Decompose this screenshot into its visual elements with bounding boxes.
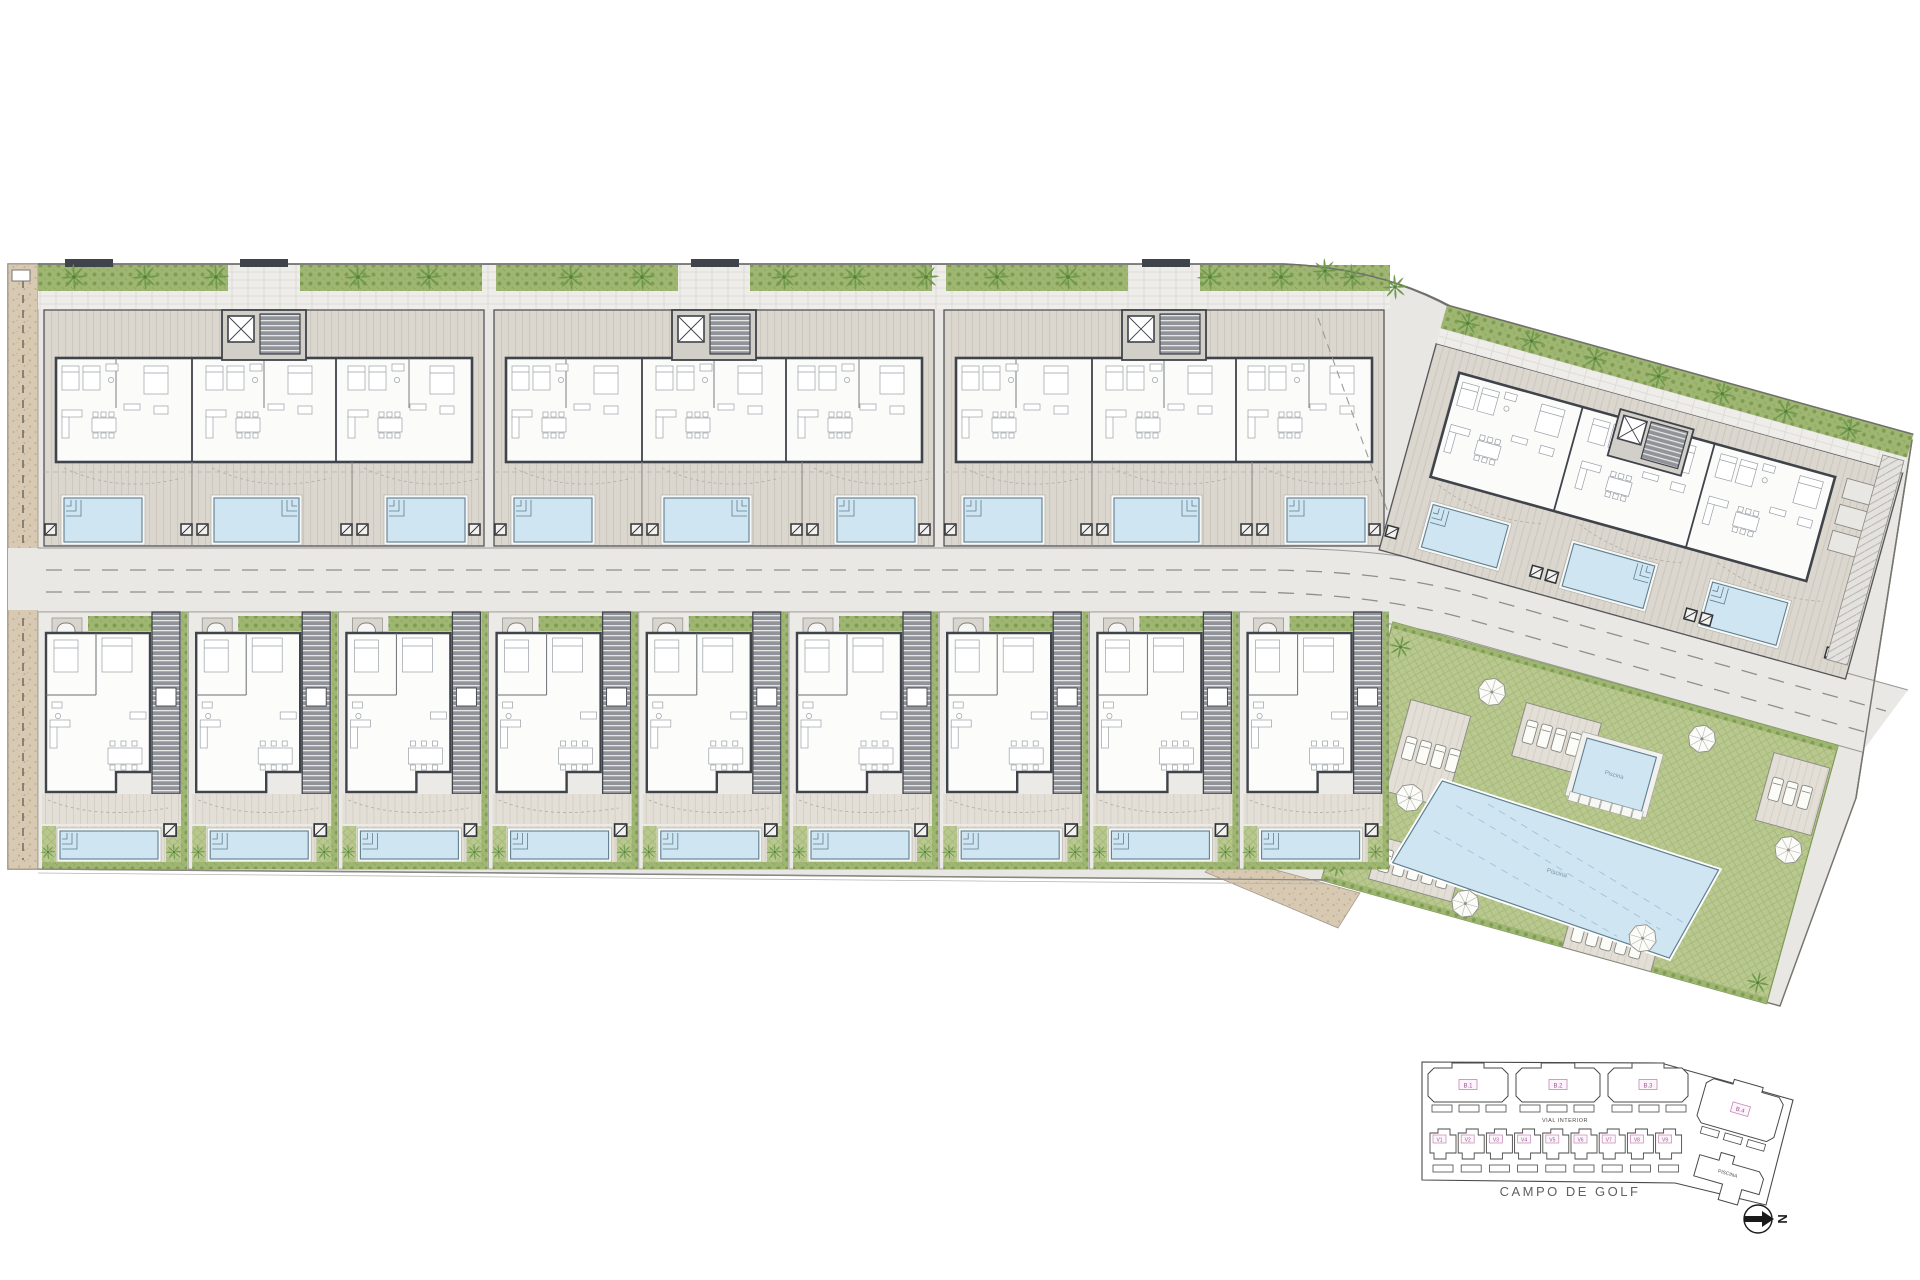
north-arrow: N — [1744, 1205, 1790, 1233]
rear-hedge — [643, 862, 783, 869]
planter-icon — [1545, 570, 1559, 584]
planter-icon — [197, 524, 208, 535]
side-hedge — [782, 612, 788, 869]
villa-V6 — [789, 612, 938, 869]
pool-water — [1262, 831, 1360, 859]
planter-icon — [919, 524, 930, 535]
villa-V5 — [639, 612, 788, 869]
outdoor-shower-icon — [765, 824, 777, 836]
outdoor-shower-icon — [1215, 824, 1227, 836]
site-plan-image: PiscinaPiscinaB.1B.2B.3VIAL INTERIORV1V2… — [0, 0, 1920, 1280]
planter-icon — [631, 524, 642, 535]
keyplan-villa-label: V2 — [1465, 1137, 1471, 1143]
planter-icon — [1530, 565, 1544, 579]
hedge-gap-entry — [482, 265, 496, 292]
planter-icon — [1684, 608, 1698, 622]
rear-hedge — [192, 862, 332, 869]
keyplan-villa-label: V1 — [1436, 1137, 1442, 1143]
keyplan-villa-label: V4 — [1521, 1137, 1527, 1143]
pool-water — [360, 831, 458, 859]
hedge-gap-entry — [1128, 265, 1200, 292]
side-hedge — [1383, 612, 1389, 869]
outdoor-shower-icon — [615, 824, 627, 836]
villa-V7 — [939, 612, 1088, 869]
outdoor-shower-icon — [164, 824, 176, 836]
rear-hedge — [1244, 862, 1384, 869]
planter-icon — [357, 524, 368, 535]
outdoor-shower-icon — [464, 824, 476, 836]
rear-hedge — [943, 862, 1083, 869]
hedge-gap-entry — [678, 265, 750, 292]
keyplan-villa-label: V8 — [1634, 1137, 1640, 1143]
side-hedge — [632, 612, 638, 869]
keyplan-villa-label: V3 — [1493, 1137, 1499, 1143]
keyplan-villa-label: V9 — [1662, 1137, 1668, 1143]
keyplan-block-label: B.3 — [1643, 1084, 1653, 1090]
pool-water — [961, 831, 1059, 859]
keyplan-golf-label: CAMPO DE GOLF — [1500, 1184, 1641, 1199]
stair-core — [672, 310, 756, 360]
side-hedge — [1232, 612, 1238, 869]
planter-icon — [341, 524, 352, 535]
entrance-canopy — [691, 259, 739, 267]
villa-V2 — [188, 612, 337, 869]
planter-icon — [45, 524, 56, 535]
keyplan-block-label: B.2 — [1553, 1084, 1563, 1090]
rear-hedge — [42, 862, 182, 869]
planter-icon — [181, 524, 192, 535]
planter-icon — [1257, 524, 1268, 535]
pool-water — [210, 831, 308, 859]
entry-gate — [12, 270, 30, 281]
side-hedge — [932, 612, 938, 869]
north-letter: N — [1775, 1214, 1790, 1223]
pool-water — [214, 498, 299, 542]
outdoor-shower-icon — [1065, 824, 1077, 836]
keyplan-villa-label: V7 — [1606, 1137, 1612, 1143]
pool-water — [60, 831, 158, 859]
site-plan-svg: PiscinaPiscinaB.1B.2B.3VIAL INTERIORV1V2… — [0, 0, 1920, 1280]
hedge-gap-entry — [228, 265, 300, 292]
entrance-canopy — [240, 259, 288, 267]
pool-water — [661, 831, 759, 859]
side-hedge — [181, 612, 187, 869]
villa-V8 — [1089, 612, 1238, 869]
rear-hedge — [342, 862, 482, 869]
planter-icon — [1081, 524, 1092, 535]
keyplan-road-label: VIAL INTERIOR — [1542, 1118, 1588, 1124]
planter-icon — [945, 524, 956, 535]
stairs-icon — [710, 314, 750, 354]
key-plan: B.1B.2B.3VIAL INTERIORV1V2V3V4V5V6V7V8V9… — [1422, 1062, 1793, 1233]
apartment-block-B.2 — [494, 310, 934, 546]
apartment-block-B.1 — [44, 310, 484, 546]
planter-icon — [807, 524, 818, 535]
planter-icon — [469, 524, 480, 535]
planter-icon — [1241, 524, 1252, 535]
rear-hedge — [793, 862, 933, 869]
villa-V9 — [1240, 612, 1389, 869]
villa-V3 — [338, 612, 487, 869]
rear-hedge — [493, 862, 633, 869]
pool-water — [664, 498, 749, 542]
stair-core — [222, 310, 306, 360]
side-hedge — [1082, 612, 1088, 869]
stairs-icon — [260, 314, 300, 354]
outdoor-shower-icon — [1366, 824, 1378, 836]
keyplan-villa-label: V6 — [1577, 1137, 1583, 1143]
entrance-canopy — [1142, 259, 1190, 267]
side-hedge — [331, 612, 337, 869]
planter-icon — [1385, 525, 1399, 539]
entrance-canopy — [65, 259, 113, 267]
pool-water — [1114, 498, 1199, 542]
outdoor-shower-icon — [314, 824, 326, 836]
keyplan-villa-label: V5 — [1549, 1137, 1555, 1143]
stair-core — [1122, 310, 1206, 360]
villa-row — [38, 612, 1389, 869]
pool-water — [811, 831, 909, 859]
planter-icon — [1097, 524, 1108, 535]
pool-water — [1111, 831, 1209, 859]
keyplan-block-label: B.1 — [1463, 1084, 1473, 1090]
planter-icon — [1699, 612, 1713, 626]
stairs-icon — [1160, 314, 1200, 354]
rear-hedge — [1093, 862, 1233, 869]
planter-icon — [791, 524, 802, 535]
apartment-block-B.3 — [944, 310, 1384, 546]
villa-V4 — [489, 612, 638, 869]
perimeter-path — [8, 264, 38, 869]
side-hedge — [481, 612, 487, 869]
planter-icon — [647, 524, 658, 535]
outdoor-shower-icon — [915, 824, 927, 836]
pool-water — [511, 831, 609, 859]
hedge-gap-entry — [932, 265, 946, 292]
north-promenade — [38, 259, 1452, 309]
planter-icon — [1369, 524, 1380, 535]
planter-icon — [495, 524, 506, 535]
villa-V1 — [38, 612, 187, 869]
